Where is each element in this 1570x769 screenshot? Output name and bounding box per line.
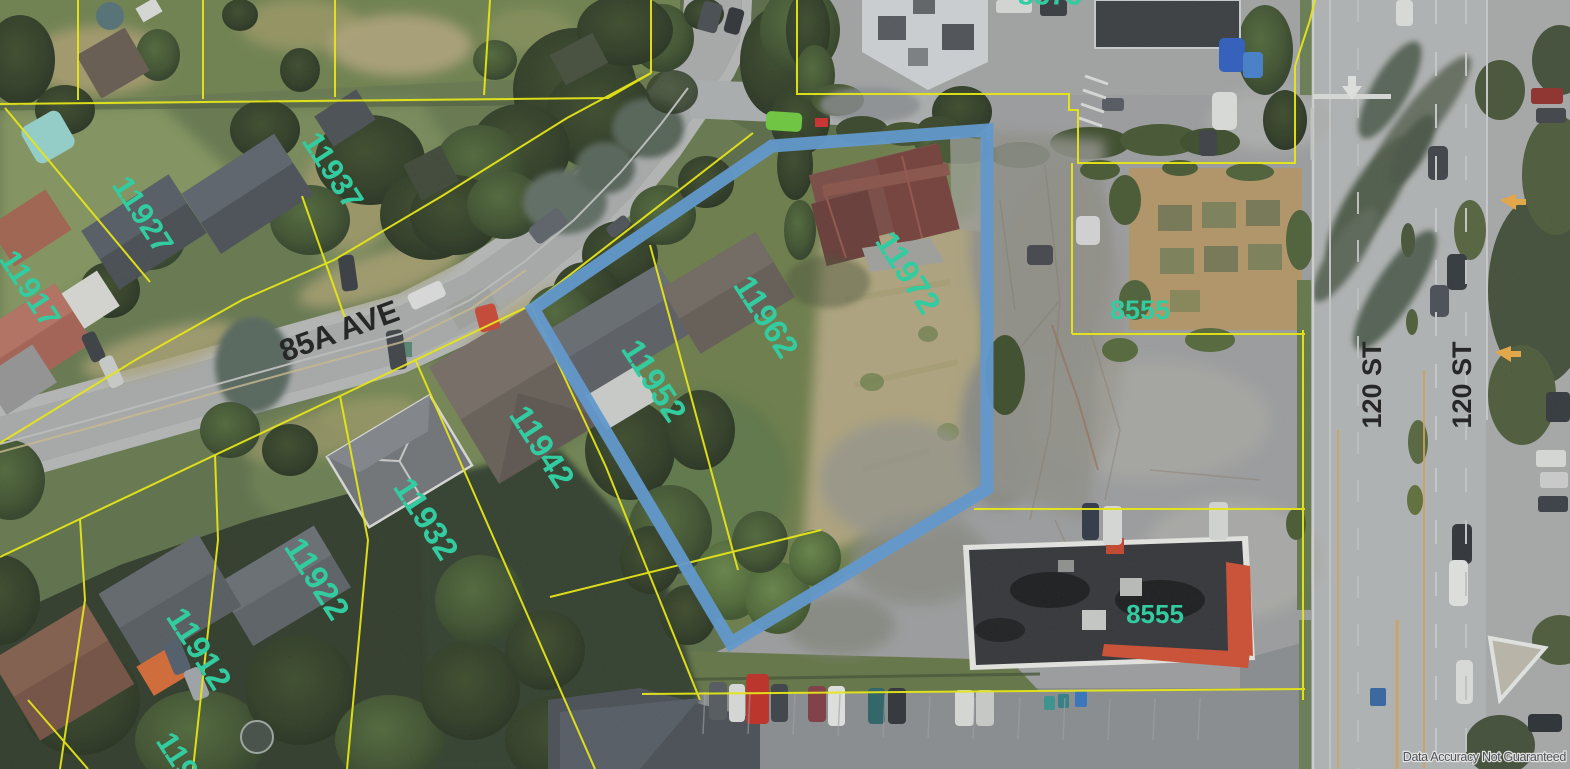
svg-text:Data Accuracy Not Guaranteed: Data Accuracy Not Guaranteed [1403, 750, 1567, 764]
